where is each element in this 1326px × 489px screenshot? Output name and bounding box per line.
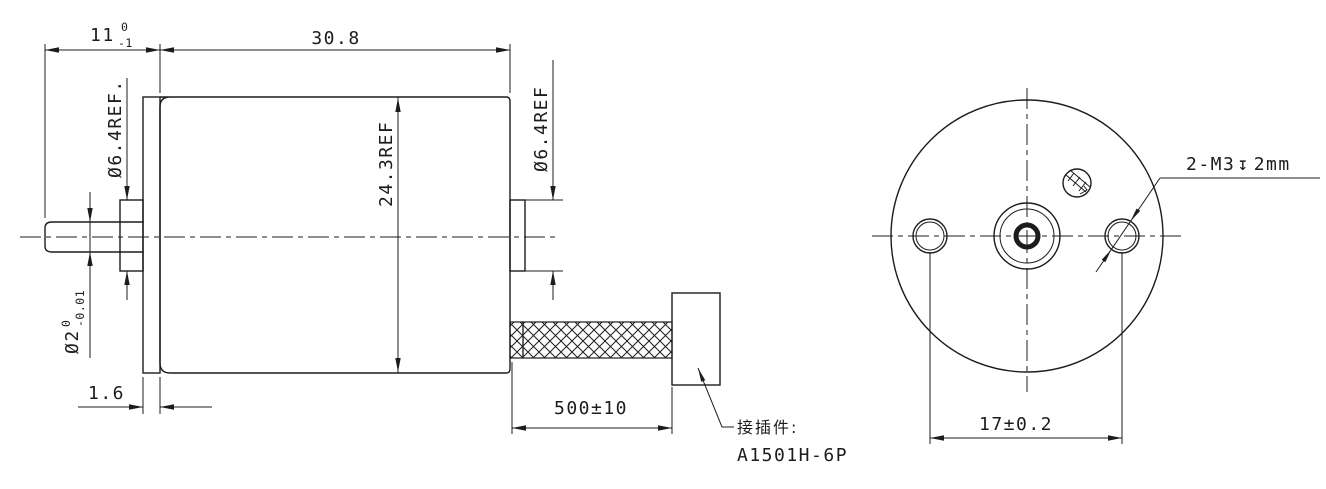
dim-body-dia: 24.3REF (376, 121, 397, 207)
arrowhead (698, 368, 705, 382)
dim-front-boss-dia: Ø6.4REF. (105, 79, 126, 178)
dim-rear-boss-dia: Ø6.4REF (531, 86, 552, 172)
lead-wire (523, 322, 672, 358)
dim-flange-thickness: 1.6 (88, 383, 125, 404)
engineering-drawing-page: 11 0 -1 30.8 Ø6.4REF. Ø2 0 -0.01 24.3REF (0, 0, 1326, 489)
rear-boss (510, 200, 525, 271)
dim-lead-length: 500±10 (554, 398, 628, 419)
dim-hole-spacing: 17±0.2 (979, 414, 1053, 435)
depth-symbol-icon: ↧ (1237, 154, 1249, 175)
front-boss (120, 200, 143, 271)
arrowhead (160, 47, 174, 52)
screw-feature (1063, 169, 1091, 197)
dim-shaft-protrusion-nominal: 11 (90, 25, 115, 46)
thread-callout-depth: 2mm (1254, 154, 1291, 175)
dim-shaft-protrusion: 11 0 -1 (90, 20, 133, 50)
arrowhead (658, 425, 672, 430)
arrowhead (395, 358, 400, 372)
arrowhead (1131, 209, 1141, 222)
arrowhead (930, 435, 944, 440)
motor-body (160, 97, 510, 373)
lead-clamp (510, 322, 523, 358)
dim-shaft-protrusion-upper: 0 (121, 20, 128, 34)
dim-shaft-dia-upper: 0 (59, 320, 73, 327)
arrowhead (1102, 249, 1112, 262)
connector-note-model: A1501H-6P (737, 445, 848, 466)
side-view: 11 0 -1 30.8 Ø6.4REF. Ø2 0 -0.01 24.3REF (20, 20, 848, 466)
dim-shaft-dia-nominal: Ø2 (62, 329, 83, 354)
thread-callout-size: 2-M3 (1186, 154, 1235, 175)
dim-shaft-dia: Ø2 0 -0.01 (59, 290, 87, 354)
arrowhead (1108, 435, 1122, 440)
arrowhead (160, 404, 174, 409)
arrowhead (45, 47, 59, 52)
arrowhead (146, 47, 160, 52)
dim-body-length: 30.8 (311, 28, 360, 49)
arrowhead (496, 47, 510, 52)
arrowhead (87, 208, 92, 222)
connector-note-label: 接插件: (737, 418, 798, 437)
arrowhead (124, 271, 129, 285)
connector-leader (698, 368, 734, 427)
mounting-flange (143, 97, 160, 373)
thread-callout: 2-M3↧2mm (1186, 154, 1291, 175)
motor-technical-drawing: 11 0 -1 30.8 Ø6.4REF. Ø2 0 -0.01 24.3REF (0, 0, 1326, 489)
arrowhead (87, 252, 92, 266)
front-view: 2-M3↧2mm 17±0.2 (872, 88, 1320, 444)
arrowhead (395, 98, 400, 112)
arrowhead (550, 271, 555, 285)
arrowhead (512, 425, 526, 430)
arrowhead (550, 186, 555, 200)
arrowhead (129, 404, 143, 409)
arrowhead (124, 186, 129, 200)
dim-shaft-protrusion-lower: -1 (118, 36, 133, 50)
dim-shaft-dia-lower: -0.01 (73, 290, 87, 327)
connector-block (672, 293, 720, 385)
